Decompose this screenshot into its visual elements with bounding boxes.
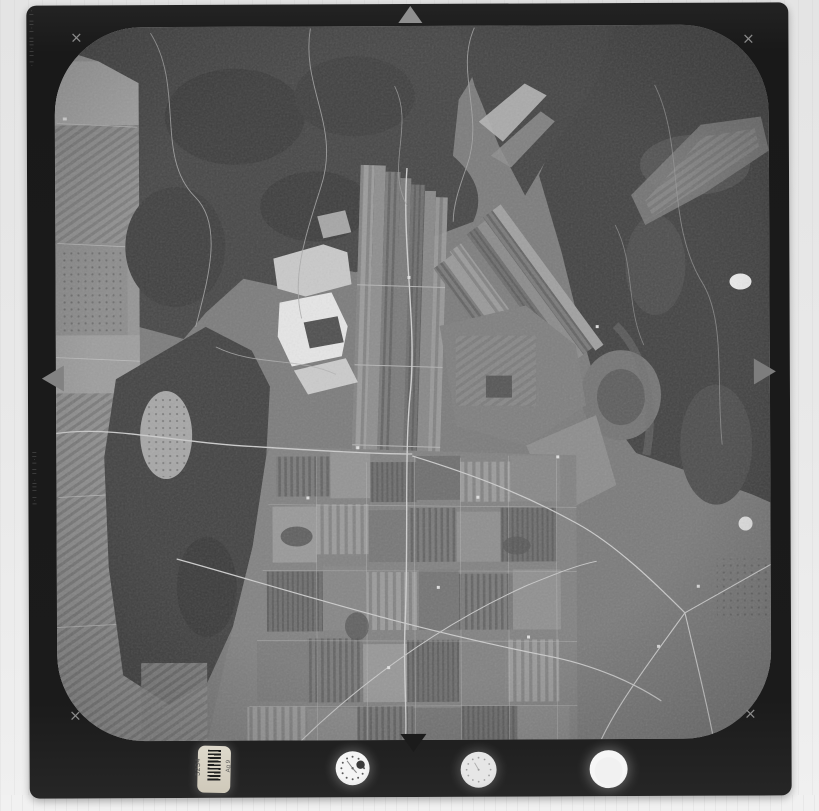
- film-grain: [54, 24, 771, 741]
- label-number: 5234: [195, 758, 202, 776]
- fiducial-bottom-icon: [400, 734, 426, 752]
- film-frame: × × × × ·| ||·| |||·|| |· ||·| || ·||| |…: [26, 2, 791, 798]
- fiducial-right-icon: [754, 358, 776, 384]
- film-edge-marking-top: ·| ||·| |||·|| |·: [29, 10, 34, 70]
- registration-cross-bottom-right: ×: [742, 705, 758, 721]
- registration-cross-bottom-left: ×: [67, 707, 83, 723]
- barcode-icon: [207, 750, 221, 781]
- registration-cross-top-right: ×: [740, 30, 756, 46]
- aerial-photo-graphic: [54, 24, 771, 741]
- fiducial-left-icon: [42, 366, 64, 392]
- film-edge-marking-middle: ||·| || ·||| |·|: [32, 452, 37, 514]
- registration-cross-top-left: ×: [68, 29, 84, 45]
- archive-label: 5234 Ag 9: [197, 745, 231, 793]
- altimeter-dial: [461, 752, 497, 788]
- fiducial-top-icon: [398, 6, 422, 23]
- blank-dial: [590, 750, 628, 788]
- aerial-photo: [54, 24, 771, 741]
- label-code: Ag 9: [225, 760, 231, 772]
- clock-dial: [336, 751, 370, 785]
